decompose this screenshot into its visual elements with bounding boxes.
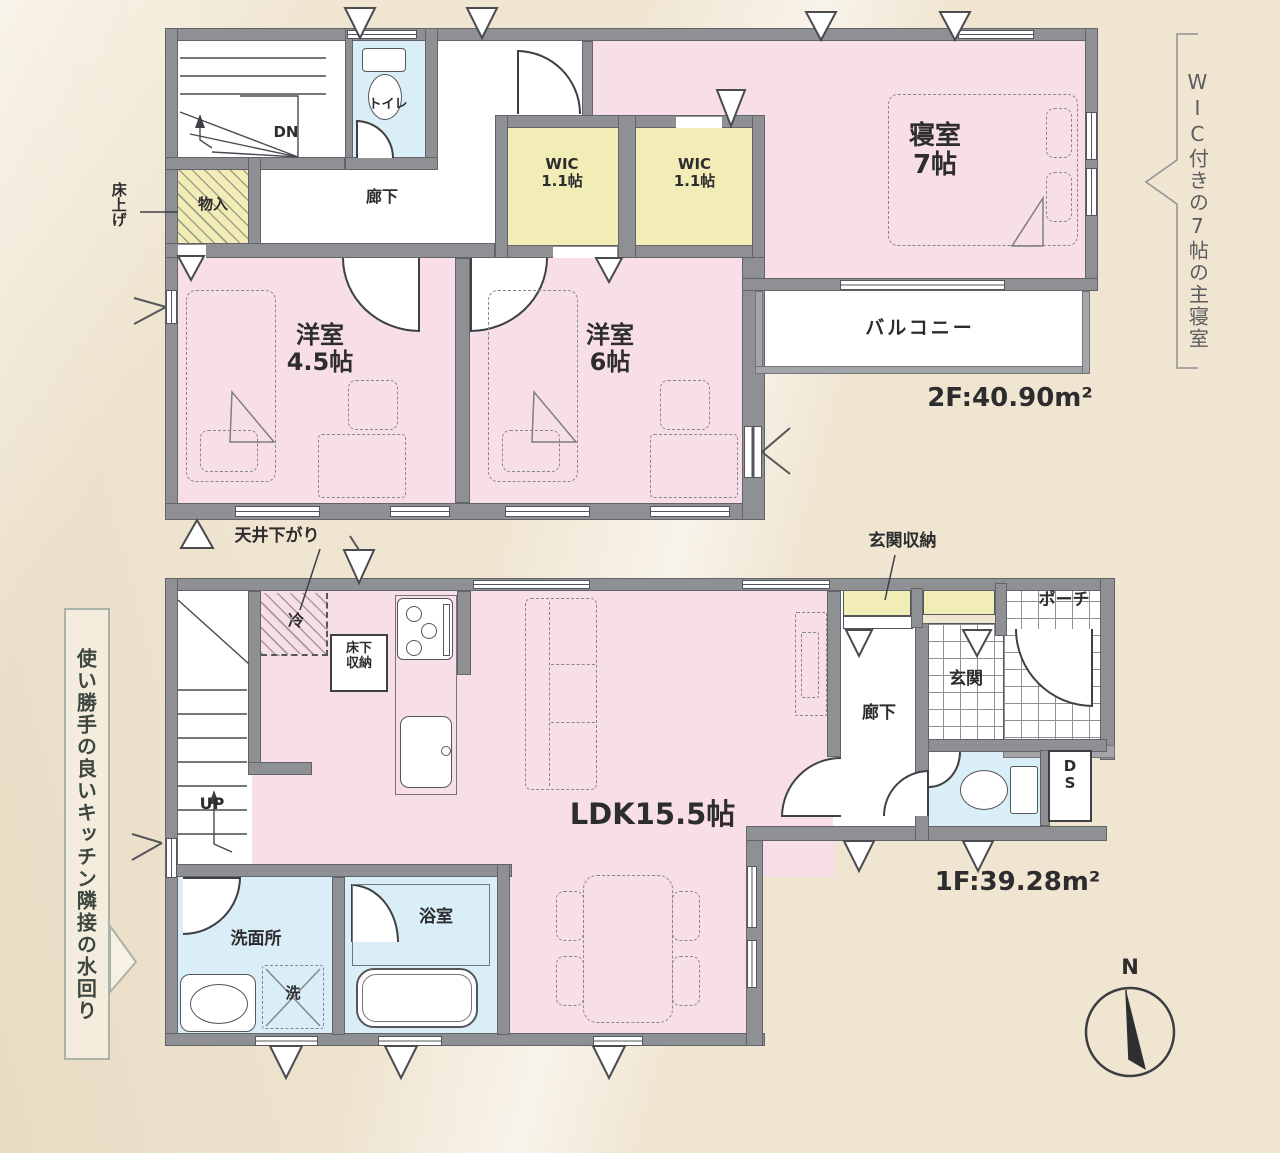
left-note-text: 使い勝手の良いキッチン隣接の水回り [74, 620, 96, 1050]
bedroom-label: 寝室 7帖 [855, 122, 1015, 180]
wall [165, 578, 1115, 591]
window [747, 866, 757, 928]
window [473, 580, 590, 589]
chair [348, 380, 398, 430]
toilet-bowl [960, 770, 1008, 810]
wall [165, 864, 512, 877]
tv [801, 632, 819, 698]
balcony-rail [1082, 291, 1090, 374]
ldk-label: LDK15.5帖 [540, 798, 765, 830]
wall [582, 41, 593, 117]
compass-needle [1126, 990, 1146, 1070]
window [347, 30, 417, 39]
washroom-label: 洗面所 [208, 930, 304, 949]
wall [248, 762, 312, 775]
f2-storage-label: 物入 [184, 196, 242, 213]
window [235, 506, 320, 517]
wall [827, 591, 841, 757]
wall [1100, 578, 1115, 760]
f2-toilet-label: トイレ [348, 98, 428, 113]
wall [332, 877, 345, 1035]
wall [455, 258, 470, 503]
chair [672, 956, 700, 1006]
desk [318, 434, 406, 498]
window [505, 506, 590, 517]
chair [556, 956, 584, 1006]
window [166, 838, 177, 878]
window [255, 1036, 318, 1046]
floor-raised-note: 床上げ [110, 154, 127, 254]
sofa-back-line [549, 602, 550, 786]
wall [345, 157, 438, 170]
wic1-label: WIC 1.1帖 [506, 156, 618, 190]
pillow [1046, 172, 1072, 222]
entry-cabinet [843, 590, 911, 616]
chair [556, 891, 584, 941]
right-note-text: WIC付きの7帖の主寝室 [1186, 48, 1208, 372]
window [650, 506, 730, 517]
opening [676, 117, 722, 128]
entrance-label: 玄関 [936, 670, 996, 689]
faucet [441, 746, 451, 756]
wall [911, 588, 923, 628]
vanity-sink [190, 984, 248, 1024]
compass-circle [1086, 988, 1174, 1076]
burner [406, 640, 422, 656]
sofa [525, 598, 597, 790]
sofa-divider [551, 664, 595, 665]
window [166, 290, 177, 324]
porch-label: ポーチ [1026, 591, 1102, 610]
wall [165, 578, 178, 1046]
burner [406, 606, 422, 622]
wic2-label: WIC 1.1帖 [635, 156, 754, 190]
window [1086, 112, 1097, 160]
window [958, 30, 1034, 39]
bathtub-inner [362, 974, 472, 1022]
wall [248, 157, 261, 256]
window [593, 1036, 643, 1046]
entry-counter [843, 616, 913, 629]
f1-area-label: 1F:39.28m² [920, 868, 1115, 897]
washer-label: 洗 [278, 985, 308, 1002]
f1-stairs-floor [172, 585, 252, 873]
f2-hall-label: 廊下 [350, 188, 414, 206]
wall [248, 591, 261, 775]
sofa-divider [551, 722, 595, 723]
wall [165, 28, 178, 520]
duct-space-label: D S [1056, 758, 1084, 791]
underfloor-storage-label: 床下 収納 [330, 642, 388, 671]
ceiling-drop-note: 天井下がり [202, 527, 352, 546]
desk [650, 434, 738, 498]
entry-storage-note: 玄関収納 [845, 532, 960, 551]
f2-area-label: 2F:40.90m² [915, 384, 1105, 413]
compass-n-label: N [1112, 956, 1148, 980]
opening [178, 245, 206, 258]
compass [1086, 988, 1174, 1076]
wall [457, 591, 471, 675]
window [378, 1036, 442, 1046]
wall [497, 864, 510, 1035]
wall [995, 583, 1007, 636]
balcony-rail [755, 291, 763, 374]
grill [443, 604, 450, 656]
wall [746, 826, 763, 1046]
pillow [1046, 108, 1072, 158]
stairs-up-label: UP [184, 795, 240, 813]
fridge-label: 冷 [282, 612, 310, 630]
chair [660, 380, 710, 430]
balcony-rail [755, 366, 1090, 374]
f1-hall-label: 廊下 [848, 704, 910, 723]
chair [672, 891, 700, 941]
balcony-label: バルコニー [845, 318, 995, 339]
toilet-tank [1010, 766, 1038, 814]
bath-label: 浴室 [404, 908, 468, 927]
opening [553, 247, 617, 258]
dining-table [583, 875, 673, 1023]
balcony-sliding-door [840, 280, 1005, 290]
floorplan-page: DN トイレ 廊下 物入 床上げ WIC 1.1帖 WIC 1.1帖 寝室 7帖… [0, 0, 1280, 1153]
toilet-tank [362, 48, 406, 72]
burner [421, 623, 437, 639]
window [390, 506, 450, 517]
window [1086, 168, 1097, 216]
stairs-dn-label: DN [256, 124, 316, 141]
window [744, 426, 762, 478]
wall [165, 243, 495, 258]
pillow [502, 430, 560, 472]
compass-needle-line [1126, 990, 1129, 1060]
room6-label: 洋室 6帖 [540, 322, 680, 376]
pillow [200, 430, 258, 472]
left-note-pointer [110, 926, 136, 992]
window [742, 580, 830, 589]
entry-cabinet [923, 588, 995, 615]
wall [618, 115, 636, 258]
window [747, 940, 757, 988]
room45-label: 洋室 4.5帖 [250, 322, 390, 376]
